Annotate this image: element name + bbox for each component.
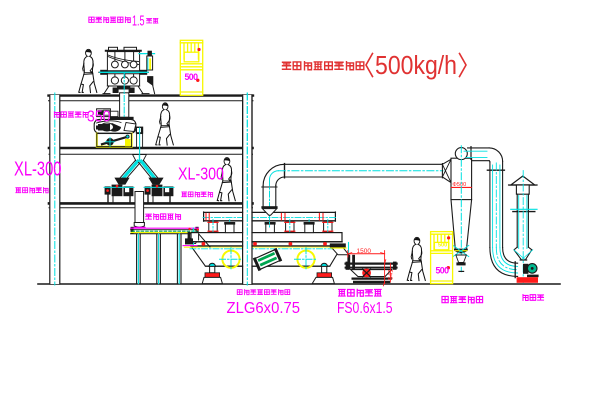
svg-text:FS0.6x1.5: FS0.6x1.5 xyxy=(337,300,393,317)
svg-text:1500: 1500 xyxy=(357,248,372,255)
svg-text:XL-300: XL-300 xyxy=(14,159,62,181)
svg-text:1.5: 1.5 xyxy=(132,13,145,30)
svg-text:500kg/h: 500kg/h xyxy=(375,52,457,80)
svg-text:350: 350 xyxy=(87,109,111,126)
svg-text:500: 500 xyxy=(185,72,199,82)
svg-text:XL-300: XL-300 xyxy=(178,164,224,184)
svg-text:500: 500 xyxy=(436,266,450,276)
svg-text:ZLG6x0.75: ZLG6x0.75 xyxy=(227,300,301,317)
svg-text:500: 500 xyxy=(438,243,447,249)
svg-text:541: 541 xyxy=(388,269,395,280)
